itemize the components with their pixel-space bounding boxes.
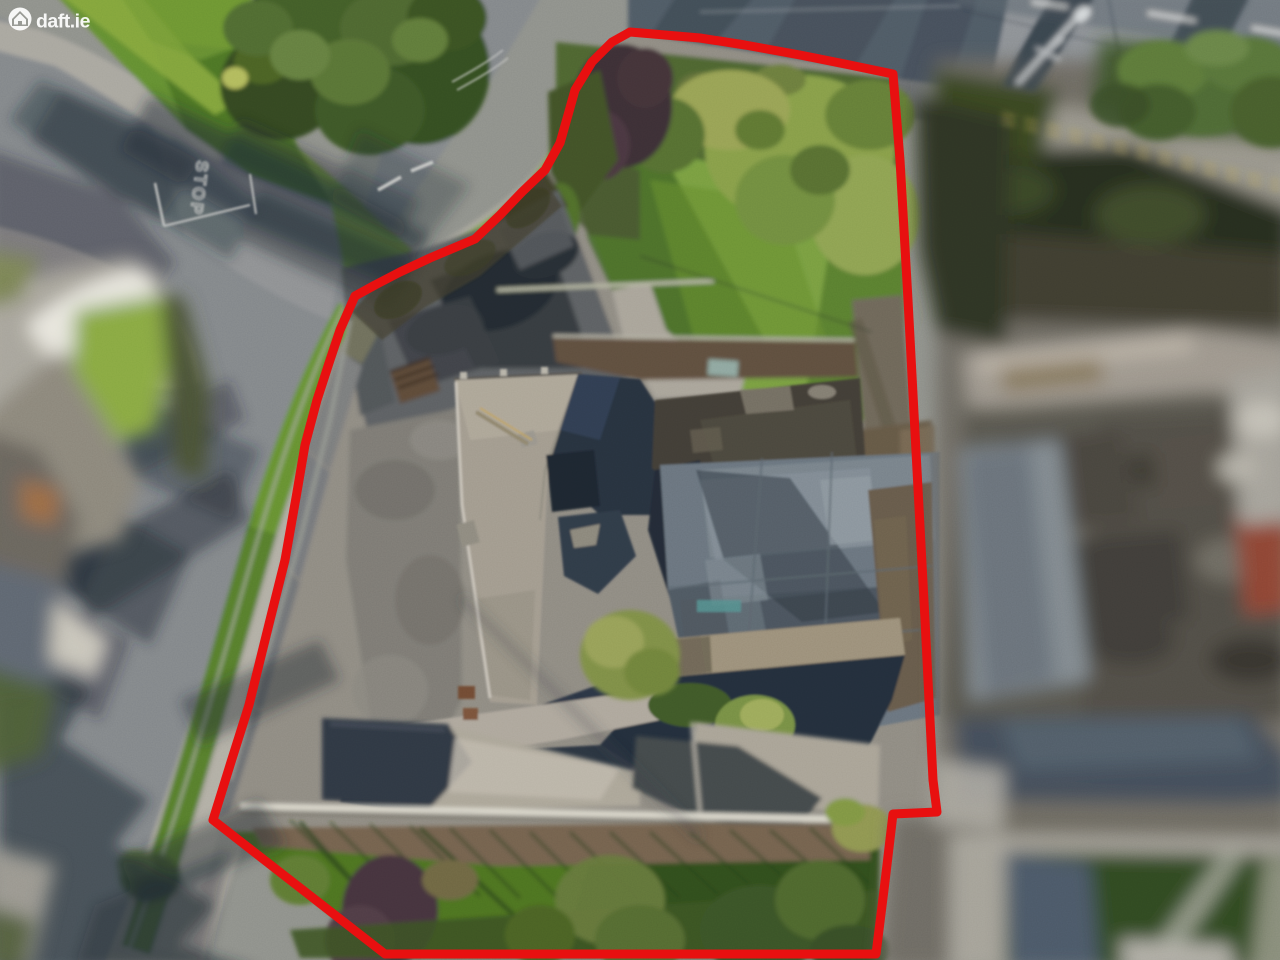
svg-text:daft.ie: daft.ie	[36, 11, 91, 33]
